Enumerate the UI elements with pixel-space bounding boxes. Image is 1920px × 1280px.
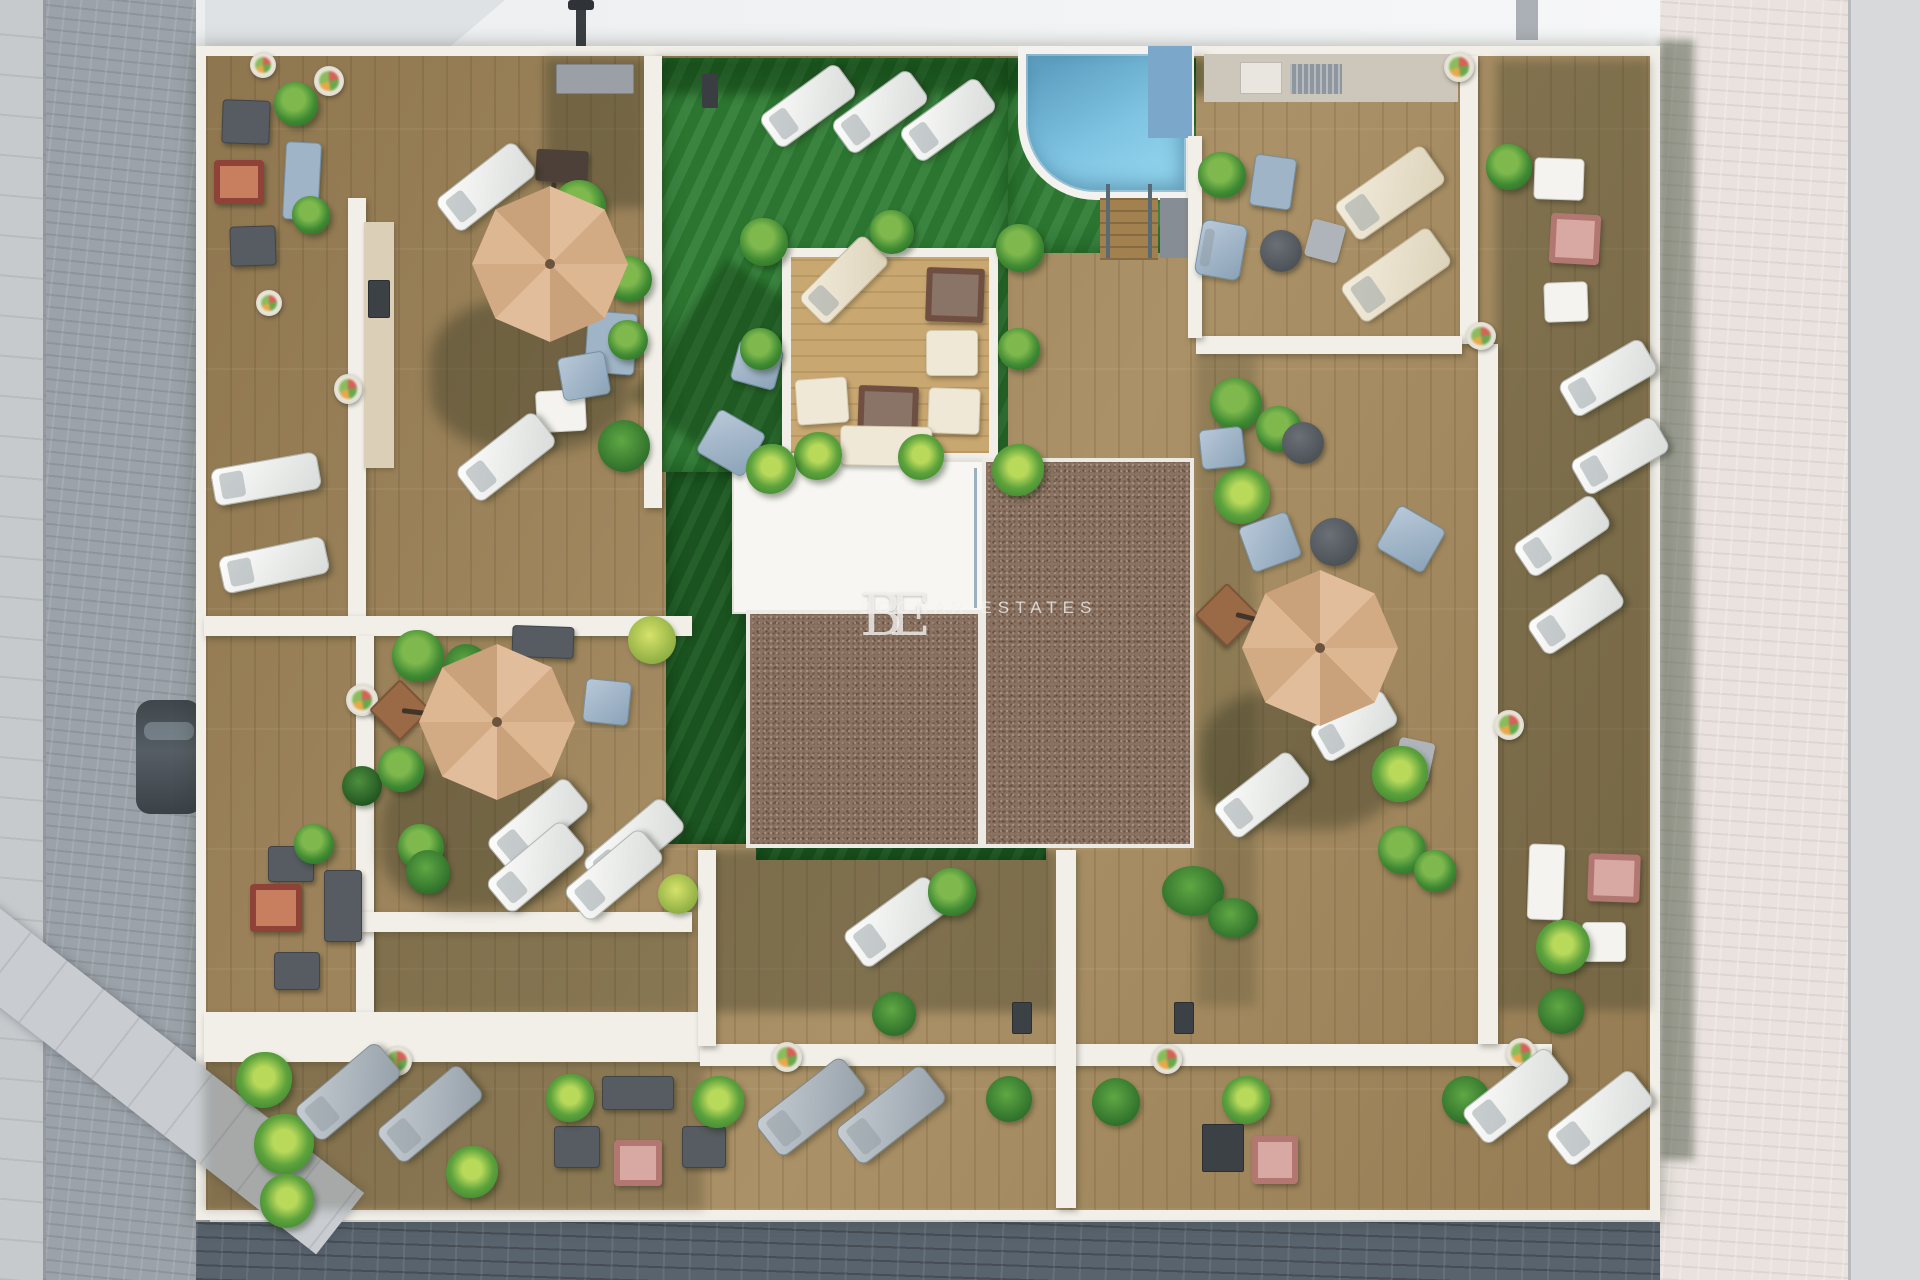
grill — [368, 280, 390, 318]
lounger — [1193, 218, 1248, 281]
counter — [556, 64, 634, 94]
flower-pot — [772, 1042, 802, 1072]
bush — [986, 1076, 1032, 1122]
palm — [236, 1052, 292, 1108]
flower-pot — [1466, 322, 1496, 350]
patio-heater — [702, 74, 718, 108]
palm — [794, 432, 842, 480]
sofa — [602, 1076, 674, 1110]
sofa — [1533, 157, 1584, 201]
sofa — [927, 387, 981, 435]
sofa — [682, 1126, 726, 1168]
patio-umbrella-southwest — [419, 644, 575, 800]
plant — [1210, 378, 1262, 430]
palm — [992, 444, 1044, 496]
palm — [1198, 152, 1246, 198]
sofa — [221, 99, 271, 145]
table — [1260, 230, 1302, 272]
fire-table — [1549, 213, 1602, 266]
fire-table — [1252, 1136, 1298, 1184]
plant — [996, 224, 1044, 272]
sofa — [1543, 281, 1588, 323]
flower-pot — [1152, 1044, 1182, 1074]
lounger — [1333, 143, 1448, 243]
fire-bowl — [1282, 422, 1324, 464]
plant — [292, 196, 330, 234]
palm — [1222, 1076, 1270, 1124]
speaker — [1174, 1002, 1194, 1034]
lounger — [1511, 493, 1613, 580]
lounger — [1556, 337, 1659, 420]
table — [925, 267, 985, 323]
lounger — [1568, 415, 1671, 498]
plant — [378, 746, 424, 792]
palm — [546, 1074, 594, 1122]
sofa — [324, 870, 362, 942]
bush — [406, 850, 450, 894]
palm — [260, 1174, 314, 1228]
flower-pot — [314, 66, 344, 96]
flower-pot — [1494, 710, 1524, 740]
cabinet — [1202, 1124, 1244, 1172]
bush — [872, 992, 916, 1036]
flower-pot — [250, 52, 276, 78]
bush — [1092, 1078, 1140, 1126]
fire-table — [214, 160, 264, 204]
plant — [870, 210, 914, 254]
armchair — [557, 350, 612, 402]
sofa — [794, 376, 849, 426]
fire-table — [250, 884, 302, 932]
plant — [294, 824, 334, 864]
armchair — [582, 678, 632, 727]
lounger — [217, 535, 331, 595]
palm — [446, 1146, 498, 1198]
fire-table — [1587, 853, 1641, 903]
flower-pot — [256, 290, 282, 316]
side-table — [535, 149, 589, 184]
furniture-layer — [0, 0, 1920, 1280]
chair — [1198, 426, 1246, 470]
sofa — [1527, 843, 1566, 920]
bush — [1538, 988, 1584, 1034]
lounger — [210, 451, 323, 507]
speaker — [1012, 1002, 1032, 1034]
plant — [392, 630, 444, 682]
bush — [658, 874, 698, 914]
patio-umbrella-east — [1242, 570, 1398, 726]
palm — [898, 434, 944, 480]
sofa — [229, 225, 276, 267]
sofa — [1249, 153, 1298, 210]
plant — [274, 82, 318, 126]
lounger — [1525, 571, 1627, 658]
palm — [1214, 468, 1270, 524]
palm — [1372, 746, 1428, 802]
bush — [598, 420, 650, 472]
fire-table — [614, 1140, 662, 1186]
flower-pot — [1444, 52, 1474, 82]
plant — [740, 218, 788, 266]
sofa — [926, 330, 978, 376]
lounger — [1339, 225, 1454, 325]
palm — [746, 444, 796, 494]
topiary — [342, 766, 382, 806]
aerial-render: BE BOGNAR ESTATES — [0, 0, 1920, 1280]
chair — [1375, 504, 1447, 574]
lounger — [1211, 749, 1313, 841]
table — [1310, 518, 1358, 566]
watermark-name: BOGNAR ESTATES — [860, 598, 1097, 618]
bush — [628, 616, 676, 664]
plant — [608, 320, 648, 360]
sofa — [511, 625, 574, 659]
sofa — [274, 952, 320, 990]
vine — [1208, 898, 1258, 938]
plant — [740, 328, 782, 370]
lounger — [454, 410, 559, 505]
chair — [1304, 218, 1347, 264]
flower-pot — [334, 374, 362, 404]
plant — [928, 868, 976, 916]
plant — [1414, 850, 1456, 892]
plant — [998, 328, 1040, 370]
sofa — [554, 1126, 600, 1168]
plant — [1486, 144, 1532, 190]
palm — [692, 1076, 744, 1128]
palm — [1536, 920, 1590, 974]
